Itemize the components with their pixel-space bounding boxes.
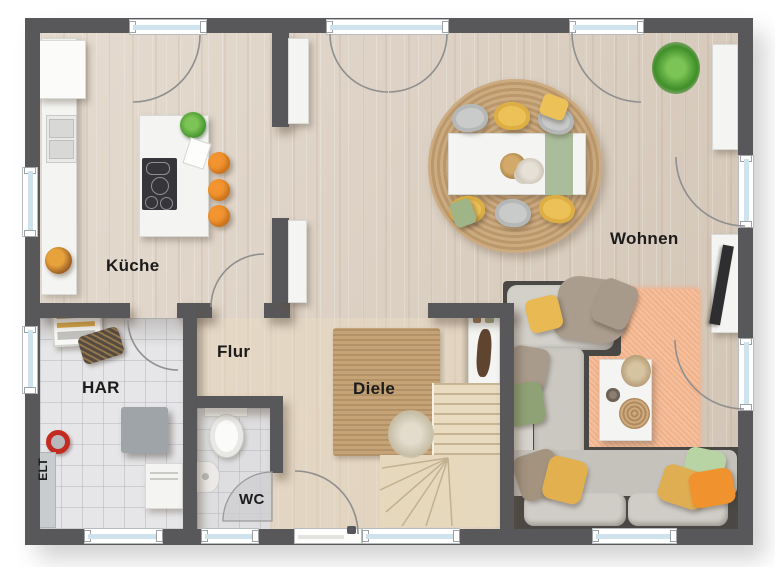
- door-arc-front-door: [295, 471, 358, 534]
- room-label-diele: Diele: [353, 379, 395, 399]
- door-arc-har: [128, 320, 178, 370]
- room-label-wohnen: Wohnen: [610, 229, 679, 249]
- room-label-elt: ELT: [36, 458, 50, 481]
- room-label-kueche: Küche: [106, 256, 159, 276]
- door-arc-double-right: [389, 34, 447, 92]
- door-arc-terrace-2: [675, 340, 744, 409]
- door-arc-kitchen-hall: [211, 254, 264, 307]
- room-label-flur: Flur: [217, 342, 250, 362]
- room-label-har: HAR: [82, 378, 120, 398]
- floor-plan: Küche Wohnen Flur HAR Diele WC ELT: [0, 0, 775, 567]
- room-label-wc: WC: [239, 491, 265, 508]
- door-arc-terrace-1: [676, 157, 745, 226]
- door-arc-top-right: [572, 33, 641, 102]
- stair-tread: [448, 458, 452, 526]
- door-arc-double-left: [330, 34, 388, 92]
- door-arc-kitchen-top: [133, 35, 200, 102]
- door-arcs-layer: [0, 0, 775, 567]
